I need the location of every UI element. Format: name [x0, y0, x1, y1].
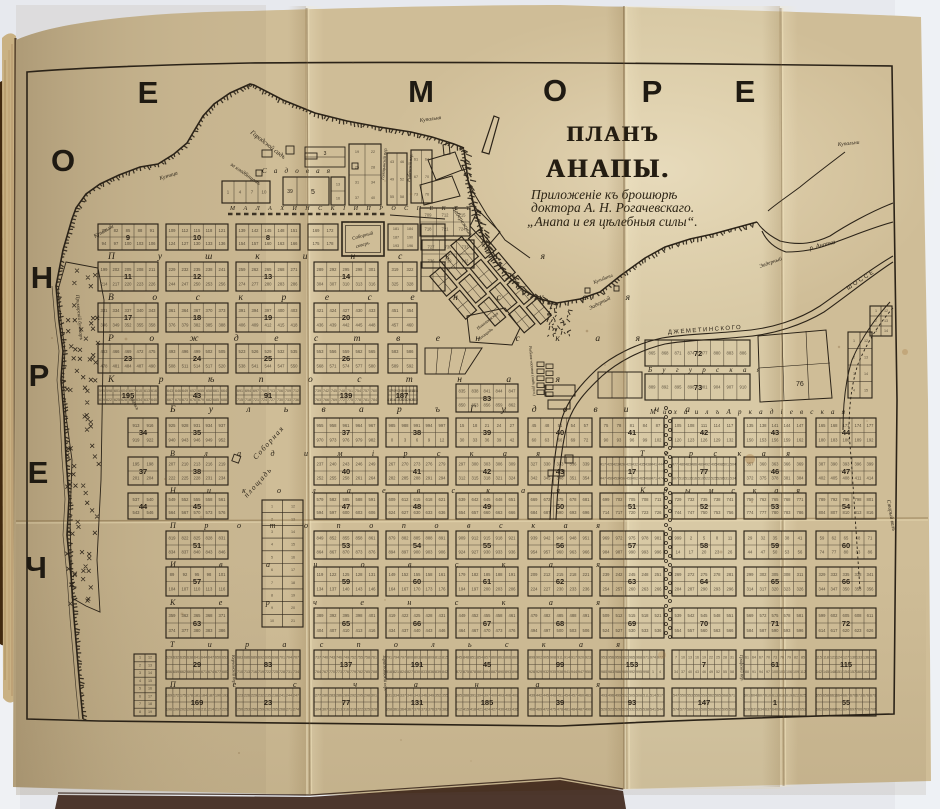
svg-text:718: 718	[425, 227, 433, 232]
svg-text:58: 58	[700, 541, 708, 550]
svg-text:402: 402	[819, 476, 827, 481]
svg-text:377: 377	[182, 628, 190, 633]
svg-text:98: 98	[207, 572, 212, 577]
svg-text:906: 906	[439, 550, 447, 555]
svg-text:25: 25	[264, 354, 272, 363]
svg-text:62: 62	[832, 536, 837, 541]
svg-text:837: 837	[182, 550, 190, 555]
svg-text:903: 903	[426, 550, 434, 555]
svg-text:61: 61	[414, 157, 418, 161]
svg-text:909: 909	[459, 536, 467, 541]
svg-text:199: 199	[173, 707, 179, 711]
svg-text:696: 696	[583, 510, 591, 515]
svg-text:12: 12	[291, 505, 295, 509]
svg-text:59: 59	[771, 541, 779, 550]
svg-text:231: 231	[206, 476, 214, 481]
svg-text:65: 65	[844, 536, 849, 541]
svg-text:208: 208	[194, 707, 200, 711]
svg-text:157: 157	[252, 241, 260, 246]
svg-text:186: 186	[843, 437, 851, 442]
svg-text:704: 704	[286, 656, 292, 660]
svg-text:614: 614	[819, 628, 827, 633]
svg-text:574: 574	[673, 707, 679, 711]
svg-text:574: 574	[343, 363, 351, 368]
svg-text:860: 860	[491, 656, 497, 660]
svg-text:451: 451	[557, 693, 563, 697]
svg-text:928: 928	[182, 423, 190, 428]
svg-text:676: 676	[863, 693, 869, 697]
svg-text:975: 975	[629, 536, 637, 541]
svg-text:93: 93	[617, 437, 622, 442]
svg-text:40: 40	[342, 467, 350, 476]
svg-text:671: 671	[201, 670, 207, 674]
svg-text:714: 714	[603, 510, 611, 515]
svg-text:490: 490	[585, 707, 591, 711]
svg-text:646: 646	[786, 707, 792, 711]
svg-text:45: 45	[483, 660, 491, 669]
svg-text:419: 419	[389, 613, 397, 618]
svg-text:342: 342	[531, 476, 539, 481]
svg-text:804: 804	[819, 510, 827, 515]
svg-text:319: 319	[350, 707, 356, 711]
svg-text:565: 565	[369, 349, 377, 354]
svg-text:764: 764	[315, 670, 321, 674]
svg-text:454: 454	[564, 693, 570, 697]
svg-text:927: 927	[472, 550, 480, 555]
svg-text:849: 849	[317, 536, 325, 541]
svg-text:502: 502	[206, 349, 214, 354]
svg-text:17: 17	[628, 467, 636, 476]
svg-text:496: 496	[608, 693, 614, 697]
svg-text:482: 482	[544, 613, 552, 618]
svg-text:365: 365	[194, 613, 202, 618]
svg-text:838: 838	[472, 389, 480, 394]
svg-text:388: 388	[463, 693, 469, 697]
svg-text:607: 607	[758, 693, 764, 697]
svg-text:328: 328	[371, 707, 377, 711]
svg-text:5: 5	[139, 687, 141, 691]
svg-text:29: 29	[193, 660, 201, 669]
svg-text:64: 64	[700, 577, 709, 586]
svg-text:682: 682	[816, 707, 822, 711]
svg-text:941: 941	[564, 670, 570, 674]
svg-text:177: 177	[867, 423, 875, 428]
svg-text:956: 956	[608, 656, 614, 660]
svg-text:146: 146	[369, 586, 377, 591]
svg-text:41: 41	[413, 467, 421, 476]
svg-text:726: 726	[655, 510, 663, 515]
svg-text:832: 832	[412, 398, 418, 402]
svg-text:960: 960	[557, 550, 565, 555]
svg-text:199: 199	[101, 267, 109, 272]
svg-text:809: 809	[428, 656, 434, 660]
svg-text:532: 532	[629, 707, 635, 711]
svg-text:Е: Е	[735, 74, 756, 109]
svg-text:339: 339	[583, 462, 591, 467]
svg-text:786: 786	[797, 510, 805, 515]
svg-text:547: 547	[673, 693, 679, 697]
svg-text:548: 548	[714, 613, 722, 618]
svg-text:430: 430	[498, 707, 504, 711]
svg-text:272: 272	[688, 572, 696, 577]
svg-text:1: 1	[853, 339, 855, 343]
svg-text:507: 507	[672, 476, 678, 480]
svg-text:172: 172	[173, 693, 179, 697]
svg-text:66: 66	[413, 619, 421, 628]
svg-text:356: 356	[867, 586, 875, 591]
svg-text:56: 56	[798, 550, 803, 555]
svg-text:118: 118	[206, 228, 213, 233]
svg-text:624: 624	[389, 510, 397, 515]
svg-text:730: 730	[445, 245, 453, 250]
svg-text:691: 691	[836, 707, 842, 711]
svg-text:198: 198	[147, 462, 155, 467]
svg-text:601: 601	[114, 389, 120, 393]
svg-text:889: 889	[649, 385, 657, 390]
svg-text:63: 63	[193, 619, 201, 628]
svg-text:707: 707	[293, 656, 299, 660]
svg-text:3: 3	[324, 151, 327, 157]
svg-text:169: 169	[166, 693, 172, 697]
svg-text:473: 473	[496, 628, 504, 633]
svg-text:408: 408	[843, 476, 851, 481]
svg-text:581: 581	[797, 613, 805, 618]
svg-text:244: 244	[286, 693, 292, 697]
svg-text:499: 499	[615, 693, 621, 697]
svg-text:147: 147	[797, 423, 805, 428]
svg-text:576: 576	[219, 510, 227, 515]
svg-text:279: 279	[439, 462, 447, 467]
svg-text:424: 424	[484, 707, 490, 711]
svg-text:57: 57	[628, 541, 636, 550]
svg-text:606: 606	[369, 510, 377, 515]
svg-text:77: 77	[342, 698, 350, 707]
svg-text:449: 449	[459, 613, 467, 618]
svg-text:684: 684	[531, 510, 539, 515]
svg-text:552: 552	[182, 497, 190, 502]
svg-text:439: 439	[529, 693, 535, 697]
svg-text:1: 1	[875, 309, 877, 313]
svg-text:379: 379	[435, 707, 441, 711]
svg-text:3: 3	[875, 329, 877, 333]
svg-text:470: 470	[484, 628, 492, 633]
svg-text:69: 69	[571, 437, 576, 442]
svg-text:10: 10	[262, 190, 267, 195]
svg-text:921: 921	[509, 536, 517, 541]
svg-text:656: 656	[166, 670, 172, 674]
svg-text:948: 948	[570, 536, 578, 541]
svg-text:394: 394	[252, 308, 260, 313]
svg-text:631: 631	[751, 707, 757, 711]
svg-text:212: 212	[544, 572, 552, 577]
svg-text:710: 710	[237, 670, 243, 674]
svg-text:583: 583	[392, 349, 400, 354]
svg-text:919: 919	[133, 437, 141, 442]
svg-text:75: 75	[604, 423, 609, 428]
svg-text:13: 13	[688, 656, 692, 660]
svg-text:19: 19	[291, 594, 295, 598]
svg-text:736: 736	[293, 398, 299, 402]
svg-text:950: 950	[585, 670, 591, 674]
svg-text:598: 598	[729, 707, 735, 711]
svg-text:732: 732	[688, 497, 696, 502]
svg-text:319: 319	[392, 267, 400, 272]
svg-text:554: 554	[675, 628, 683, 633]
svg-text:830: 830	[414, 670, 420, 674]
svg-text:14: 14	[342, 272, 351, 281]
svg-text:762: 762	[760, 497, 768, 502]
svg-text:695: 695	[265, 656, 271, 660]
svg-text:471: 471	[651, 476, 657, 480]
svg-text:533: 533	[642, 628, 650, 633]
svg-text:568: 568	[317, 363, 325, 368]
svg-text:924: 924	[459, 550, 467, 555]
svg-text:127: 127	[843, 656, 849, 660]
svg-text:373: 373	[219, 308, 227, 313]
svg-text:622: 622	[793, 693, 799, 697]
svg-text:205: 205	[187, 707, 193, 711]
svg-text:689: 689	[251, 656, 257, 660]
svg-text:619: 619	[99, 398, 105, 402]
svg-text:40: 40	[371, 196, 375, 200]
svg-text:625: 625	[114, 398, 120, 402]
svg-text:999: 999	[675, 536, 683, 541]
svg-text:347: 347	[831, 586, 839, 591]
svg-text:106: 106	[786, 670, 792, 674]
svg-text:520: 520	[601, 707, 607, 711]
svg-text:253: 253	[244, 707, 250, 711]
svg-text:384: 384	[797, 476, 805, 481]
svg-text:712: 712	[293, 389, 299, 393]
svg-text:13: 13	[864, 355, 868, 359]
svg-text:389: 389	[317, 613, 325, 618]
svg-text:24: 24	[497, 423, 502, 428]
svg-text:18: 18	[291, 581, 295, 585]
svg-text:5: 5	[311, 189, 315, 196]
svg-text:31: 31	[730, 656, 734, 660]
svg-text:976: 976	[343, 437, 351, 442]
svg-text:674: 674	[208, 670, 214, 674]
svg-text:858: 858	[356, 536, 364, 541]
svg-text:ПЛАНЪ: ПЛАНЪ	[566, 121, 659, 146]
svg-text:866: 866	[505, 656, 511, 660]
svg-text:60: 60	[413, 577, 421, 586]
svg-text:694: 694	[245, 389, 251, 393]
svg-text:227: 227	[544, 586, 552, 591]
svg-text:800: 800	[407, 656, 413, 660]
svg-text:262: 262	[265, 707, 271, 711]
svg-text:693: 693	[570, 510, 578, 515]
svg-text:194: 194	[459, 586, 467, 591]
svg-text:547: 547	[278, 363, 286, 368]
svg-text:882: 882	[402, 536, 410, 541]
svg-text:945: 945	[557, 536, 565, 541]
svg-text:492: 492	[704, 462, 710, 466]
svg-text:912: 912	[472, 536, 480, 541]
svg-text:783: 783	[784, 510, 792, 515]
svg-text:184: 184	[407, 227, 413, 231]
svg-text:739: 739	[315, 389, 321, 393]
svg-text:733: 733	[462, 245, 470, 250]
svg-text:367: 367	[407, 707, 413, 711]
svg-text:454: 454	[407, 308, 415, 313]
svg-text:586: 586	[407, 349, 415, 354]
svg-text:699: 699	[603, 497, 611, 502]
svg-text:916: 916	[147, 423, 155, 428]
svg-text:128: 128	[356, 572, 364, 577]
svg-text:462: 462	[632, 476, 638, 480]
svg-text:133: 133	[206, 241, 214, 246]
svg-text:317: 317	[760, 586, 768, 591]
svg-text:211: 211	[149, 267, 156, 272]
svg-text:673: 673	[182, 398, 188, 402]
svg-text:310: 310	[329, 707, 335, 711]
svg-text:639: 639	[459, 497, 467, 502]
svg-text:250: 250	[194, 281, 202, 286]
svg-text:54: 54	[842, 502, 851, 511]
svg-text:532: 532	[278, 349, 286, 354]
svg-text:271: 271	[286, 707, 292, 711]
svg-text:193: 193	[393, 244, 399, 248]
svg-text:380: 380	[194, 628, 202, 633]
svg-text:891: 891	[439, 536, 447, 541]
svg-text:662: 662	[180, 670, 186, 674]
svg-text:142: 142	[816, 670, 822, 674]
svg-text:406: 406	[505, 693, 511, 697]
svg-text:936: 936	[509, 550, 517, 555]
svg-text:904: 904	[714, 385, 722, 390]
svg-text:49: 49	[709, 670, 713, 674]
svg-text:575: 575	[772, 613, 780, 618]
svg-text:445: 445	[543, 693, 549, 697]
svg-text:828: 828	[206, 536, 214, 541]
svg-text:487: 487	[137, 363, 145, 368]
svg-text:769: 769	[331, 398, 337, 402]
svg-text:979: 979	[356, 437, 364, 442]
svg-text:112: 112	[800, 670, 806, 674]
svg-text:716: 716	[251, 670, 257, 674]
svg-text:211: 211	[201, 707, 207, 711]
svg-text:43: 43	[556, 467, 564, 476]
svg-text:672: 672	[544, 497, 552, 502]
svg-text:834: 834	[169, 550, 177, 555]
svg-text:313: 313	[356, 281, 364, 286]
svg-text:15: 15	[864, 388, 868, 392]
svg-text:16: 16	[695, 656, 699, 660]
svg-text:452: 452	[472, 613, 480, 618]
svg-text:844: 844	[496, 389, 504, 394]
svg-text:93: 93	[628, 698, 636, 707]
svg-text:246: 246	[356, 462, 364, 467]
svg-text:45: 45	[532, 423, 537, 428]
svg-text:580: 580	[369, 363, 377, 368]
svg-text:981: 981	[655, 536, 663, 541]
svg-text:691: 691	[237, 389, 243, 393]
svg-text:421: 421	[477, 707, 483, 711]
svg-text:20: 20	[702, 550, 707, 555]
svg-text:28: 28	[371, 165, 375, 169]
svg-text:711: 711	[655, 497, 662, 502]
svg-text:148: 148	[278, 228, 286, 233]
svg-text:583: 583	[694, 707, 700, 711]
svg-text:496: 496	[182, 349, 190, 354]
svg-text:879: 879	[389, 536, 397, 541]
svg-text:997: 997	[439, 423, 447, 428]
svg-text:932: 932	[543, 670, 549, 674]
svg-text:228: 228	[194, 476, 202, 481]
svg-text:586: 586	[701, 707, 707, 711]
svg-text:13: 13	[336, 182, 340, 186]
svg-text:670: 670	[175, 398, 181, 402]
svg-text:284: 284	[675, 586, 683, 591]
svg-text:доктора А. Н. Рогачевскаго.: доктора А. Н. Рогачевскаго.	[531, 200, 694, 215]
svg-text:63: 63	[545, 437, 550, 442]
svg-text:70: 70	[700, 619, 708, 628]
svg-text:368: 368	[206, 613, 214, 618]
svg-text:944: 944	[571, 670, 577, 674]
svg-text:436: 436	[317, 322, 325, 327]
svg-text:517: 517	[206, 363, 214, 368]
svg-text:777: 777	[760, 510, 768, 515]
svg-text:281: 281	[727, 572, 735, 577]
svg-text:445: 445	[356, 322, 364, 327]
svg-text:232: 232	[258, 693, 264, 697]
svg-text:413: 413	[356, 628, 364, 633]
svg-text:971: 971	[643, 656, 649, 660]
svg-text:136: 136	[219, 241, 227, 246]
svg-text:5: 5	[271, 555, 273, 559]
svg-text:567: 567	[182, 510, 190, 515]
svg-text:300: 300	[472, 462, 480, 467]
svg-text:16: 16	[148, 687, 152, 691]
svg-text:255: 255	[330, 476, 338, 481]
svg-text:508: 508	[169, 363, 177, 368]
svg-text:414: 414	[867, 476, 875, 481]
svg-text:43: 43	[771, 428, 779, 437]
svg-text:955: 955	[317, 423, 325, 428]
svg-text:343: 343	[414, 693, 420, 697]
svg-text:987: 987	[616, 550, 624, 555]
svg-text:584: 584	[747, 628, 755, 633]
svg-text:549: 549	[169, 497, 177, 502]
svg-text:935: 935	[550, 670, 556, 674]
svg-text:403: 403	[498, 693, 504, 697]
svg-text:677: 677	[215, 670, 221, 674]
svg-text:852: 852	[330, 536, 338, 541]
svg-text:776: 776	[343, 670, 349, 674]
svg-text:10: 10	[270, 619, 274, 623]
svg-text:15: 15	[148, 679, 152, 683]
svg-text:26: 26	[342, 354, 350, 363]
svg-text:243: 243	[343, 462, 351, 467]
svg-text:797: 797	[400, 656, 406, 660]
svg-text:371: 371	[219, 613, 227, 618]
svg-text:267: 267	[389, 462, 397, 467]
svg-text:260: 260	[629, 586, 637, 591]
svg-text:208: 208	[137, 267, 145, 272]
svg-text:727: 727	[428, 245, 436, 250]
svg-text:12: 12	[864, 339, 868, 343]
svg-text:622: 622	[106, 398, 112, 402]
svg-text:385: 385	[206, 322, 214, 327]
svg-text:524: 524	[603, 628, 611, 633]
svg-text:604: 604	[751, 693, 757, 697]
svg-text:505: 505	[629, 693, 635, 697]
svg-text:46: 46	[400, 160, 404, 164]
svg-text:99: 99	[643, 437, 648, 442]
svg-text:644: 644	[201, 656, 207, 660]
svg-text:77: 77	[832, 550, 837, 555]
